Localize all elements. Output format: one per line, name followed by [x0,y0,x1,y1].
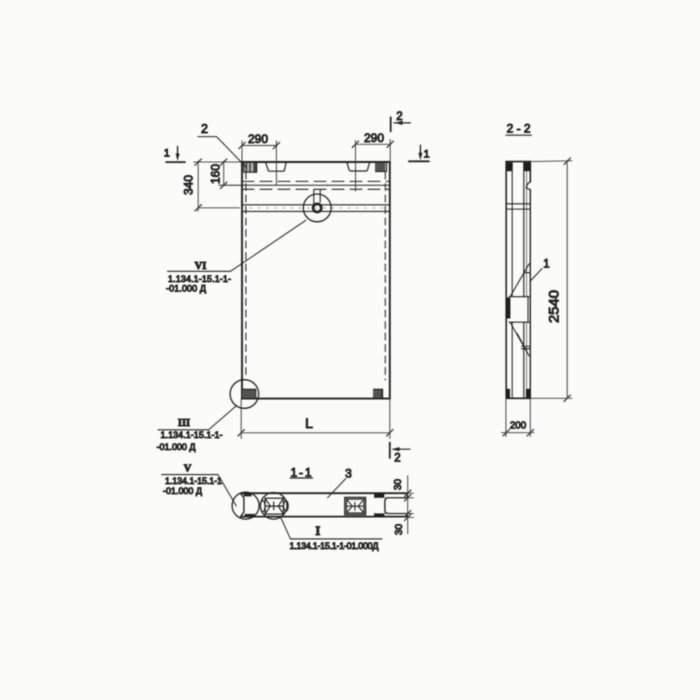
svg-text:III: III [178,418,190,429]
svg-text:30: 30 [393,479,404,491]
svg-text:290: 290 [364,131,384,145]
svg-text:-01.000 Д: -01.000 Д [166,284,206,294]
svg-text:I: I [315,524,320,538]
svg-text:200: 200 [510,421,527,432]
svg-text:1.134.1-15.1-1-: 1.134.1-15.1-1- [161,430,223,440]
svg-text:1: 1 [164,148,170,160]
svg-text:VI: VI [195,261,207,272]
svg-text:2: 2 [201,122,208,136]
svg-text:1.134.1-15.1-1: 1.134.1-15.1-1 [165,476,222,486]
svg-text:-01.000 Д: -01.000 Д [157,442,196,452]
svg-text:1: 1 [423,149,429,161]
svg-text:340: 340 [182,175,196,195]
svg-text:2: 2 [396,111,402,123]
svg-text:L: L [305,415,313,431]
svg-text:1.134.1-15.1-1-01.000Д: 1.134.1-15.1-1-01.000Д [290,541,379,551]
svg-text:V: V [184,464,192,475]
svg-text:2-2: 2-2 [507,122,531,136]
svg-text:2540: 2540 [547,290,562,323]
svg-text:1: 1 [543,259,549,271]
svg-text:160: 160 [209,164,223,184]
svg-text:30: 30 [394,524,405,536]
svg-text:290: 290 [248,132,268,146]
svg-text:-01.000 Д: -01.000 Д [163,486,202,496]
svg-text:2: 2 [394,453,400,465]
svg-text:1.134.1-15.1-1-: 1.134.1-15.1-1- [168,274,231,284]
